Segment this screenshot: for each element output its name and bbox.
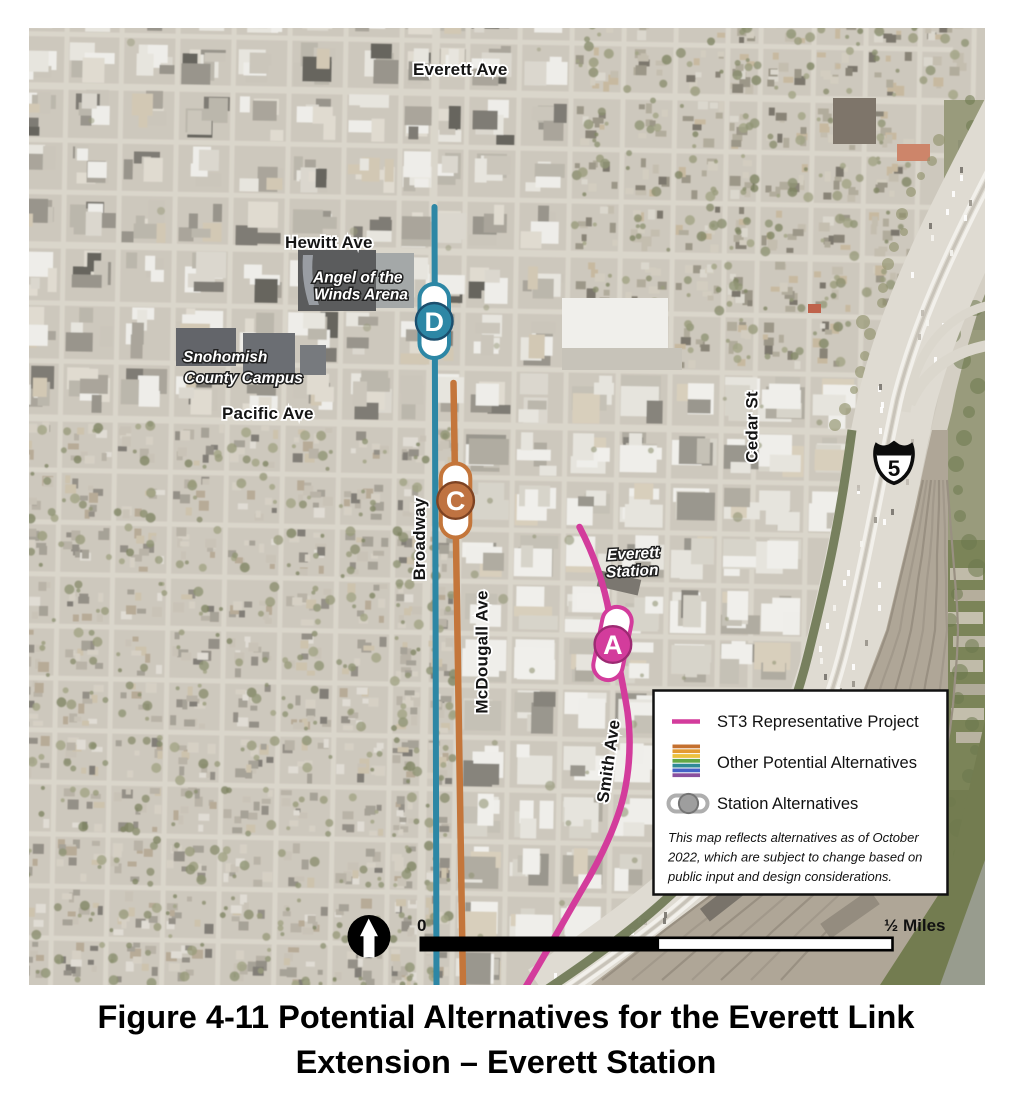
- svg-text:D: D: [424, 307, 444, 337]
- svg-text:Broadway: Broadway: [410, 497, 429, 580]
- svg-text:Pacific Ave: Pacific Ave: [222, 404, 314, 423]
- svg-text:Station Alternatives: Station Alternatives: [717, 795, 858, 813]
- svg-text:Other Potential Alternatives: Other Potential Alternatives: [717, 754, 917, 772]
- svg-text:public input and design consid: public input and design considerations.: [667, 869, 892, 884]
- svg-text:This map reflects alternatives: This map reflects alternatives as of Oct…: [668, 830, 919, 845]
- svg-text:Everett Ave: Everett Ave: [413, 60, 508, 79]
- svg-text:A: A: [603, 630, 623, 660]
- svg-text:5: 5: [888, 456, 901, 481]
- svg-text:Hewitt Ave: Hewitt Ave: [285, 233, 373, 252]
- svg-text:0: 0: [417, 916, 426, 935]
- svg-text:Miles: Miles: [903, 916, 946, 935]
- svg-text:Station: Station: [606, 562, 659, 582]
- svg-text:County Campus: County Campus: [184, 370, 303, 387]
- svg-text:Snohomish: Snohomish: [183, 349, 267, 366]
- svg-text:2022, which are subject to cha: 2022, which are subject to change based …: [667, 850, 922, 865]
- svg-text:Cedar St: Cedar St: [743, 391, 762, 463]
- svg-text:McDougall Ave: McDougall Ave: [473, 590, 492, 713]
- svg-text:Winds Arena: Winds Arena: [314, 287, 408, 304]
- svg-text:½: ½: [884, 916, 898, 935]
- svg-text:Everett: Everett: [607, 544, 661, 564]
- svg-text:ST3 Representative Project: ST3 Representative Project: [717, 713, 919, 731]
- svg-text:Angel of the: Angel of the: [312, 270, 403, 287]
- svg-text:C: C: [446, 486, 466, 516]
